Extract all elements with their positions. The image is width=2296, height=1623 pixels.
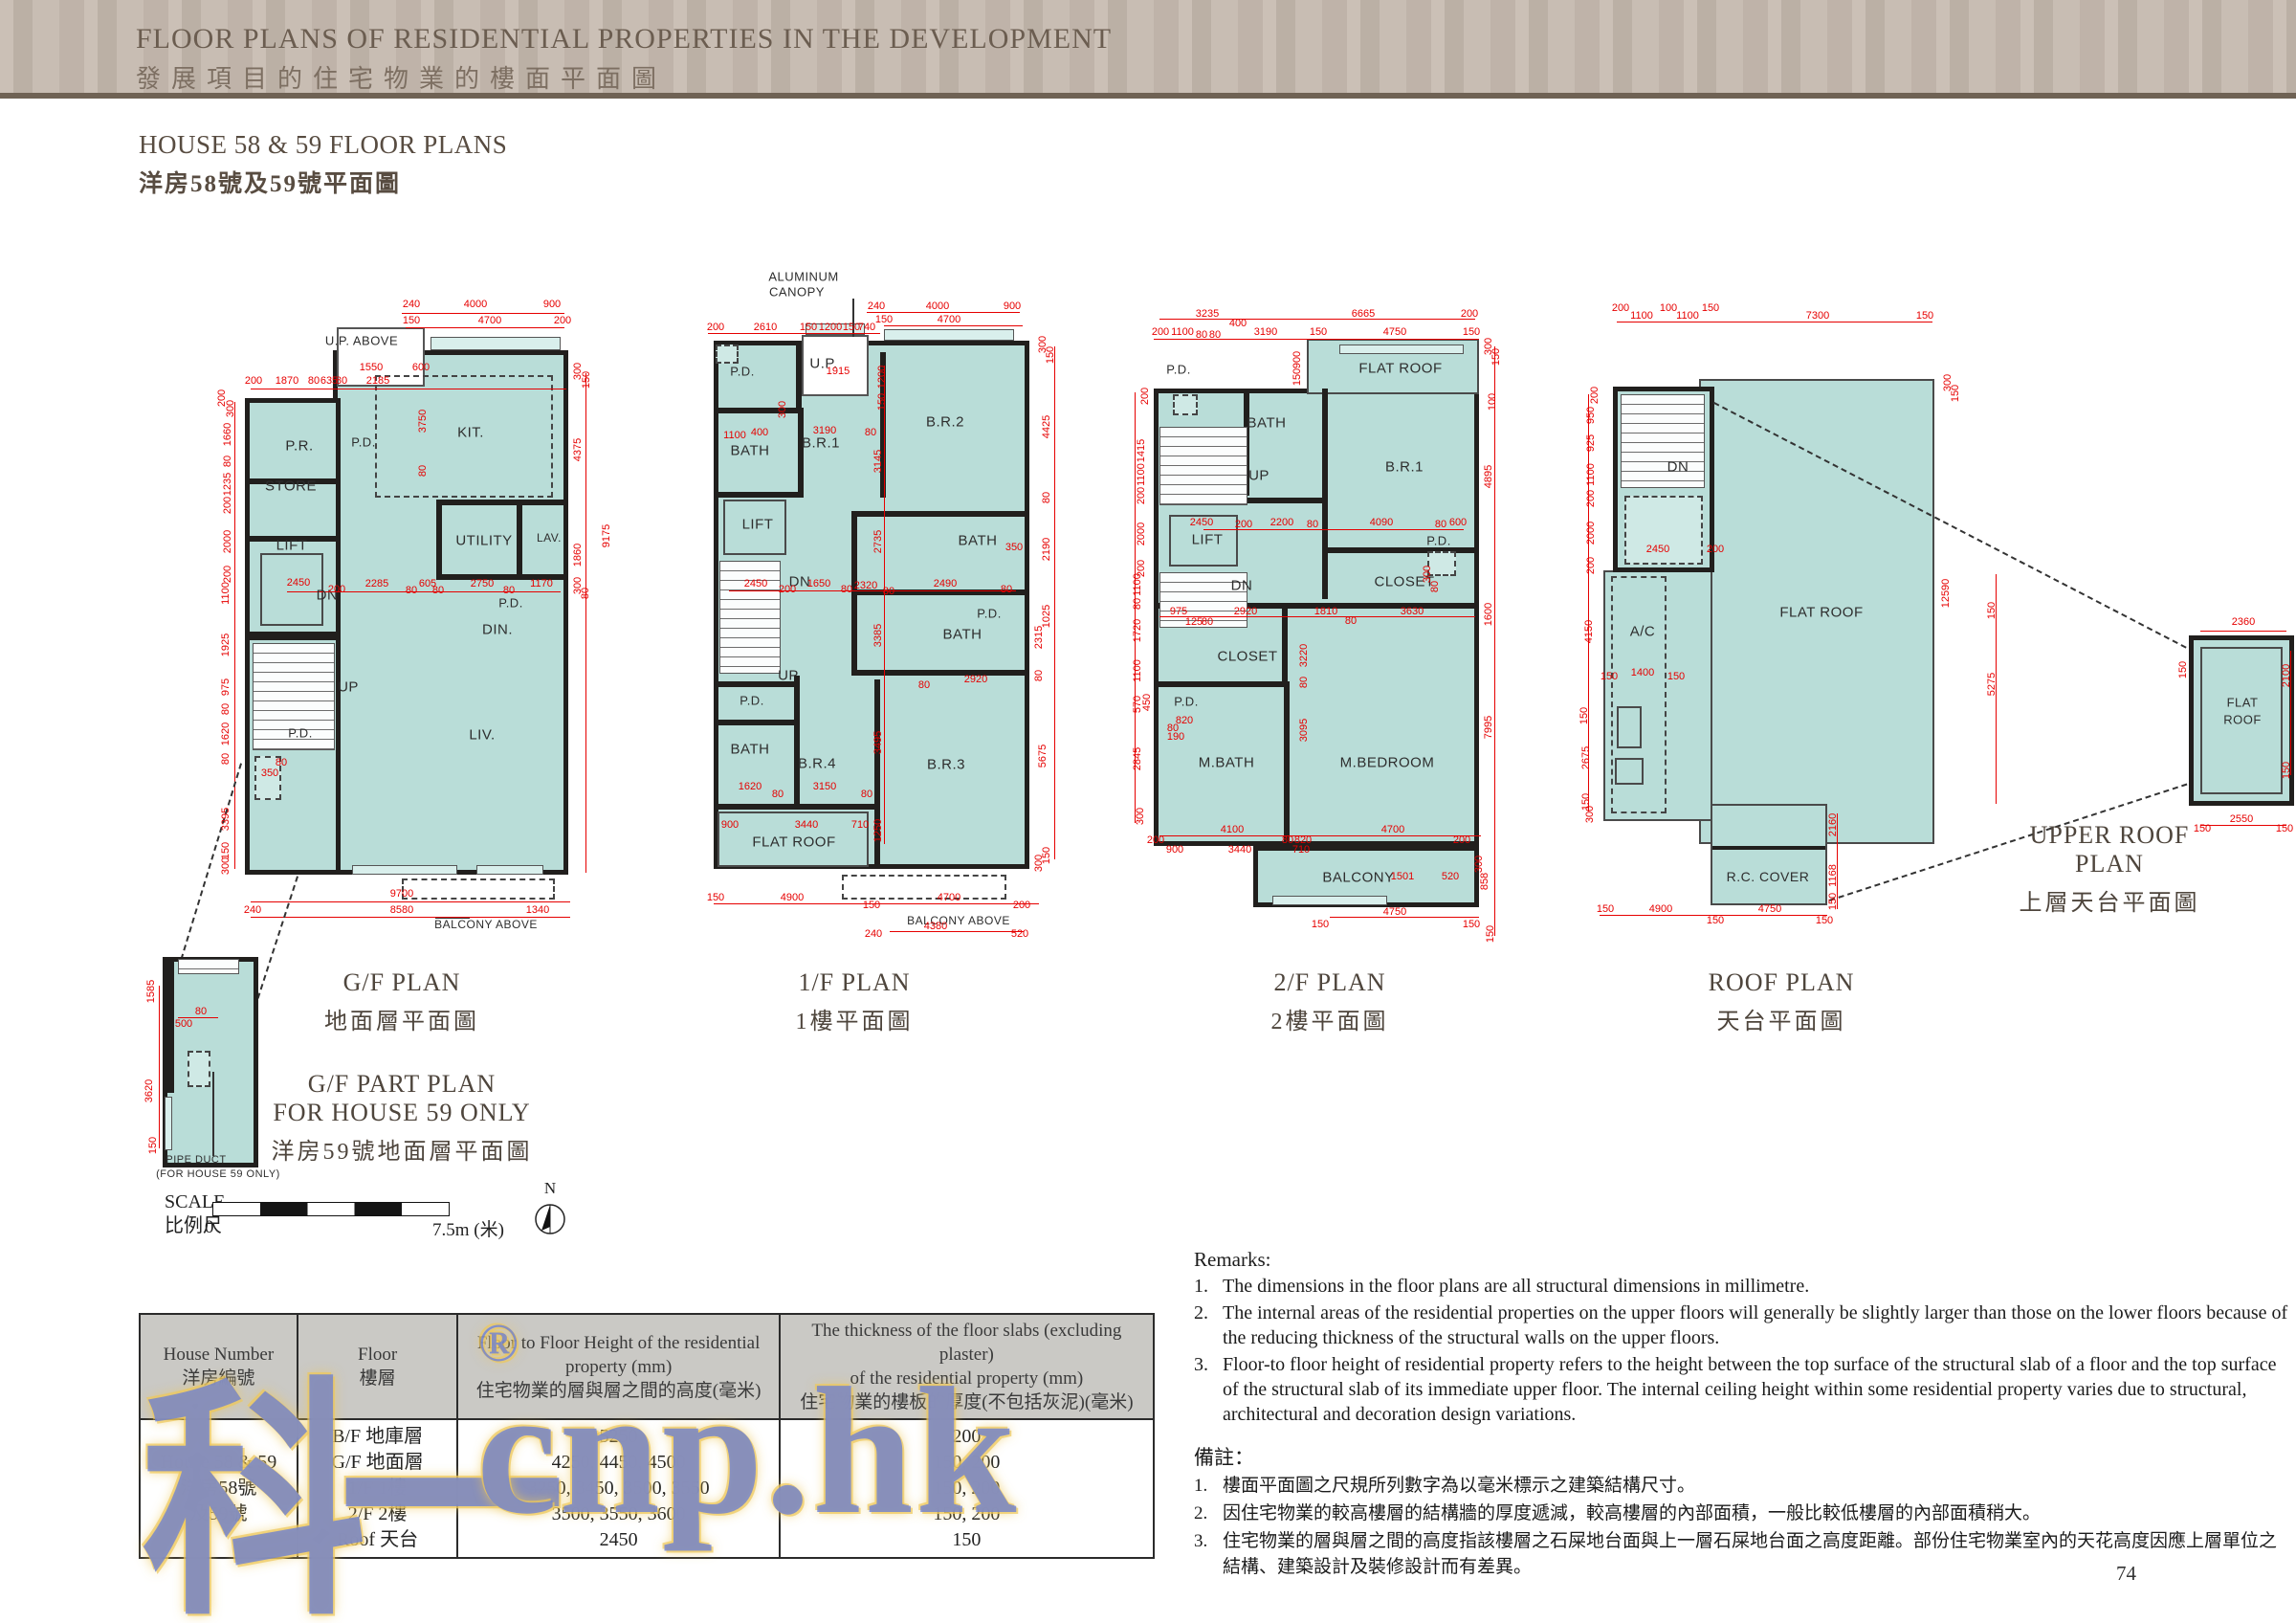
dimension-label: 150	[1597, 903, 1614, 915]
dimension-label: 150	[1667, 671, 1685, 682]
plan-caption-line: 洋房59號地面層平面圖	[272, 1132, 533, 1166]
dimension-label: 2100	[2281, 664, 2292, 687]
dimension-label: 975	[220, 678, 232, 696]
room-label: DIN.	[482, 622, 513, 638]
dimension-label: 5275	[1986, 673, 1998, 696]
dimension-label: 300	[1473, 856, 1485, 873]
remark-item: 3.Floor-to floor height of residential p…	[1194, 1352, 2292, 1427]
remarks-zh: 備註： 1.樓面平面圖之尺規所列數字為以毫米標示之建築結構尺寸。 2.因住宅物業…	[1194, 1442, 2292, 1580]
staircase-icon	[178, 959, 239, 974]
dimension-line	[1494, 346, 1495, 936]
dimension-label: 6665	[1352, 308, 1375, 320]
dimension-label: 150	[1950, 385, 1961, 402]
room-label: LIFT	[1192, 532, 1224, 548]
dimension-label: 150	[1601, 671, 1618, 682]
plan-caption-line: 2樓平面圖	[1271, 1002, 1389, 1035]
dimension-label: 200	[1585, 490, 1597, 507]
dimension-label: 80	[503, 585, 515, 596]
dimension-label: 240	[868, 300, 885, 312]
dimension-label: 200	[707, 322, 724, 333]
dimension-label: 100	[1660, 302, 1677, 314]
callout-line	[212, 1072, 214, 1156]
dimension-label: 150	[863, 900, 880, 911]
compass-icon	[529, 1198, 571, 1240]
staircase-icon	[1159, 427, 1247, 505]
room-label: FLAT ROOF	[752, 834, 835, 851]
dimension-label: 400	[1229, 318, 1247, 329]
dimension-label: 200	[222, 497, 233, 514]
dimension-label: 1870	[276, 375, 298, 387]
dimension-label: 1415	[1136, 439, 1147, 462]
dimension-label: 900	[1166, 844, 1183, 856]
dimension-label: 925	[1585, 434, 1597, 452]
dimension-label: 1600	[1483, 603, 1494, 626]
dimension-label: 4090	[1370, 517, 1393, 528]
dimension-label: 350	[261, 767, 278, 779]
plan-caption-f1: 1/F PLAN1樓平面圖	[796, 968, 914, 1035]
dimension-label: 2450	[1646, 544, 1669, 555]
dimension-label: 2200	[1270, 517, 1293, 528]
dimension-label: 1200	[876, 366, 888, 389]
wall-partition	[714, 720, 800, 725]
window-strip	[1339, 345, 1464, 354]
dimension-label: 200	[1461, 308, 1478, 320]
wall-partition	[517, 505, 522, 580]
dimension-label: 100	[1487, 393, 1498, 411]
dimension-label: 3750	[417, 410, 429, 433]
dimension-label: 2320	[854, 580, 877, 591]
plan-caption-f2: 2/F PLAN2樓平面圖	[1271, 968, 1389, 1035]
dimension-label: 200	[779, 584, 796, 595]
dimension-label: 2845	[1132, 747, 1143, 770]
dimension-label: 1585	[145, 980, 157, 1003]
dimension-label: 4900	[1649, 903, 1672, 915]
dimension-line	[406, 327, 564, 328]
dimension-line	[2200, 825, 2286, 826]
structure-outline	[1711, 804, 1827, 905]
dimension-label: 200	[1707, 544, 1724, 555]
room-label: P.D.	[740, 694, 764, 708]
scale-bar	[212, 1202, 450, 1216]
room-label: DN	[1667, 459, 1689, 476]
room-label: STORE	[265, 478, 317, 495]
window-strip	[430, 337, 561, 350]
window-strip	[352, 865, 457, 875]
dimension-label: 150	[1578, 707, 1590, 724]
room-label: B.R.4	[798, 756, 836, 772]
room-label: P.D.	[1174, 695, 1199, 709]
dimension-line	[890, 931, 1024, 932]
dimension-label: 1810	[1314, 606, 1337, 617]
dimension-label: 150	[581, 371, 592, 389]
dimension-label: 4375	[572, 438, 584, 461]
dimension-label: 80	[1033, 670, 1045, 681]
dimension-label: 950	[1585, 407, 1597, 424]
dimension-label: 80	[1001, 584, 1012, 595]
wall-partition	[857, 511, 1029, 517]
dimension-label: 80	[918, 679, 930, 691]
dimension-label: 150	[2281, 762, 2292, 779]
dimension-label: 200	[1013, 900, 1030, 911]
remark-item: 1.The dimensions in the floor plans are …	[1194, 1274, 2292, 1299]
watermark-domain: cnp.hk	[476, 1347, 1019, 1556]
room-label: B.R.1	[1385, 459, 1424, 476]
dimension-label: 80	[1202, 616, 1213, 628]
dimension-label: 1170	[530, 578, 553, 589]
dimension-label: 300	[1033, 855, 1045, 872]
dimension-label: 80	[1429, 581, 1441, 592]
plan-caption-line: 天台平面圖	[1709, 1002, 1855, 1035]
room-label: UTILITY	[455, 533, 512, 549]
room-label: LIV.	[469, 727, 495, 744]
dimension-label: 150	[147, 1137, 159, 1154]
dimension-label: 7300	[1806, 310, 1829, 322]
dimension-label: 300	[1584, 806, 1596, 823]
dimension-label: 80	[336, 375, 347, 387]
dimension-label: 4700	[1381, 824, 1404, 835]
dimension-line	[251, 389, 566, 389]
dimension-label: 1620	[739, 781, 762, 792]
room-label: P.D.	[351, 435, 376, 450]
dimension-label: 80	[220, 753, 232, 765]
dimension-label: 80	[1435, 519, 1446, 530]
room-label: B.R.1	[802, 435, 840, 452]
room-label: BATH	[943, 627, 982, 643]
dimension-label: 2285	[365, 578, 388, 589]
dimension-label: 150	[2177, 661, 2189, 678]
wall-partition	[794, 676, 800, 810]
dimension-label: 200	[1235, 519, 1252, 530]
room-label: BALCONY	[1322, 870, 1394, 886]
dimension-label: 1100	[220, 582, 232, 605]
plan-caption-line: 上層天台平面圖	[2017, 883, 2203, 917]
dimension-label: 3630	[1401, 606, 1424, 617]
dimension-label: 80	[1298, 677, 1310, 688]
room-label: A/C	[1630, 624, 1656, 640]
dimension-label: 150	[707, 892, 724, 903]
plan-caption-line: ROOF PLAN	[1709, 968, 1855, 997]
room-label: B.R.3	[927, 757, 965, 773]
dimension-label: 80	[1307, 519, 1318, 530]
room-label: BATH	[731, 443, 770, 459]
dimension-label: 300	[220, 857, 232, 875]
brochure-page: FLOOR PLANS OF RESIDENTIAL PROPERTIES IN…	[0, 0, 2296, 1623]
dimension-label: 150	[1485, 925, 1496, 943]
room-label: P.D.	[1166, 363, 1191, 377]
dimension-label: 3440	[795, 819, 818, 831]
north-arrow-icon: N	[528, 1179, 572, 1240]
dimension-label: 150	[1312, 919, 1329, 930]
dimension-label: 4000	[926, 300, 949, 312]
plan-caption-line: 1/F PLAN	[796, 968, 914, 997]
dimension-label: 740	[858, 322, 875, 333]
dimension-label: 900	[721, 819, 739, 831]
dimension-label: 3235	[1196, 308, 1219, 320]
dimension-label: 1100	[723, 430, 746, 441]
window-strip	[165, 1097, 172, 1150]
dimension-label: 3150	[813, 781, 836, 792]
structure-outline	[1615, 758, 1644, 785]
dimension-label: 80	[1345, 615, 1357, 627]
dimension-label: 80	[861, 789, 872, 800]
plan-caption-line: 1樓平面圖	[796, 1002, 914, 1035]
dimension-label: 1550	[360, 362, 383, 373]
wall-partition	[1246, 498, 1328, 503]
north-label: N	[528, 1179, 572, 1198]
room-label: FLAT ROOF	[1358, 361, 1442, 377]
dimension-label: 80	[308, 375, 320, 387]
room-label: P.D.	[498, 596, 523, 611]
dimension-label: 150	[876, 393, 888, 411]
dimension-label: 190	[1167, 731, 1184, 743]
plan-caption-gf-part: G/F PART PLANFOR HOUSE 59 ONLY洋房59號地面層平面…	[272, 1070, 533, 1166]
wall-partition	[798, 408, 804, 498]
wall-partition	[1328, 547, 1479, 553]
dimension-label: 150	[875, 314, 893, 325]
dimension-label: 2920	[964, 674, 987, 685]
window-strip	[1272, 896, 1387, 905]
dimension-line	[884, 325, 1023, 326]
remarks-block: Remarks: 1.The dimensions in the floor p…	[1194, 1248, 2292, 1580]
dimension-label: 9175	[601, 524, 612, 547]
dimension-label: 200	[1453, 834, 1470, 846]
room-label: FLAT ROOF	[1779, 605, 1863, 621]
wall-partition	[796, 341, 802, 413]
dimension-label: 3190	[813, 425, 836, 436]
dimension-label: 80	[220, 703, 232, 715]
dimension-label: 12590	[1940, 579, 1952, 609]
room-label: UP	[778, 668, 799, 684]
dimension-label: 1720	[1132, 619, 1143, 642]
room-label: DN	[1231, 578, 1253, 594]
dimension-label: 1100	[1132, 659, 1143, 682]
dimension-label: 600	[412, 362, 430, 373]
room-label: (FOR HOUSE 59 ONLY)	[156, 1168, 280, 1180]
dimension-label: 2000	[1585, 522, 1597, 545]
dimension-line	[708, 333, 880, 334]
plan-caption-line: G/F PLAN	[324, 968, 479, 997]
remarks-title-zh: 備註：	[1194, 1442, 2292, 1471]
room-label: BALCONY ABOVE	[434, 918, 538, 931]
wall-partition	[857, 670, 1029, 676]
dimension-line	[1054, 346, 1055, 859]
dimension-line	[1159, 835, 1481, 836]
dimension-label: 520	[1442, 871, 1459, 882]
dimension-label: 150	[1816, 915, 1833, 926]
plan-caption-line: 2/F PLAN	[1271, 968, 1389, 997]
room-label: LIFT	[276, 538, 308, 554]
wall-partition	[436, 500, 442, 580]
dimension-label: 200	[222, 566, 233, 583]
dimension-label: 2450	[1190, 517, 1213, 528]
dimension-label: 1250	[872, 819, 884, 842]
page-number: 74	[2116, 1562, 2136, 1586]
dimension-label: 150	[1463, 326, 1480, 338]
room-label: M.BEDROOM	[1340, 755, 1435, 771]
wall-partition	[436, 500, 568, 505]
dimension-label: 1235	[222, 473, 233, 496]
dimension-line	[1722, 915, 1827, 916]
dimension-label: 1660	[222, 423, 233, 446]
duct-box	[716, 345, 739, 364]
dimension-label: 200	[1612, 302, 1629, 314]
dimension-label: 520	[1011, 928, 1028, 940]
dimension-label: 2450	[744, 578, 767, 589]
dimension-label: 3395	[220, 808, 232, 831]
dimension-label: 1860	[572, 544, 584, 567]
dimension-label: 2610	[754, 322, 777, 333]
structure-outline	[1617, 706, 1642, 748]
dimension-label: 80	[406, 585, 417, 596]
dimension-label: 1168	[1827, 864, 1839, 887]
room-label: LIFT	[742, 517, 774, 533]
dimension-label: 4750	[1383, 326, 1406, 338]
room-label: B.R.2	[926, 414, 964, 431]
dimension-label: 80	[772, 789, 784, 800]
room-label: BATH	[731, 742, 770, 758]
dimension-label: 4750	[1383, 906, 1406, 918]
dimension-line	[884, 366, 885, 844]
dimension-label: 80	[1041, 492, 1052, 503]
dimension-label: 2190	[1041, 538, 1052, 561]
room-label: P.D.	[1426, 534, 1451, 548]
scale-start-value: 0	[205, 1217, 214, 1238]
remarks-list-en: 1.The dimensions in the floor plans are …	[1194, 1274, 2292, 1427]
dimension-label: 1100	[1132, 573, 1143, 596]
dimension-label: 4700	[938, 314, 960, 325]
dimension-label: 1100	[1136, 463, 1147, 486]
room-label: P.R.	[285, 438, 313, 455]
dimension-label: 200	[1589, 387, 1601, 404]
room-label: CLOSET	[1217, 649, 1277, 665]
dimension-label: 858	[1479, 873, 1490, 890]
remark-item: 2.The internal areas of the residential …	[1194, 1301, 2292, 1350]
remarks-title-en: Remarks:	[1194, 1248, 2292, 1272]
dimension-label: 4700	[938, 892, 960, 903]
room-label: UP	[338, 679, 359, 696]
dimension-label: 710	[851, 819, 869, 831]
duct-box	[1173, 394, 1198, 415]
dimension-label: 2675	[1580, 746, 1592, 769]
plan-caption-line: FOR HOUSE 59 ONLY	[272, 1099, 533, 1127]
dashed-outline	[842, 875, 1006, 900]
room-label: P.D.	[977, 607, 1002, 621]
structure-outline	[260, 553, 323, 626]
window-strip	[884, 329, 1014, 341]
dimension-label: 300	[1135, 808, 1146, 825]
wall-partition	[1154, 681, 1288, 687]
dimension-label: 150	[1827, 893, 1839, 910]
dimension-label: 1650	[807, 578, 830, 589]
dimension-label: 150	[1310, 326, 1327, 338]
dimension-label: 200	[1147, 834, 1164, 846]
dimension-label: 350	[1005, 542, 1023, 553]
plan-caption-line: UPPER ROOF PLAN	[2017, 821, 2203, 878]
dimension-label: 9700	[390, 888, 413, 900]
dimension-label: 80	[195, 1006, 207, 1017]
room-label: BATH	[1247, 415, 1287, 432]
dimension-label: 500	[175, 1018, 192, 1030]
wall-partition	[1284, 681, 1290, 846]
plan-caption-upper-roof: UPPER ROOF PLAN上層天台平面圖	[2017, 821, 2203, 917]
scale-label-zh: 比例尺	[165, 1214, 225, 1238]
room-label: P.D.	[730, 365, 755, 379]
room-block	[163, 957, 258, 1167]
dimension-label: 80	[883, 586, 894, 597]
dimension-label: 4000	[464, 299, 487, 310]
dimension-label: 240	[244, 904, 261, 916]
dimension-label: 1100	[1171, 326, 1194, 338]
dimension-label: 80	[841, 584, 852, 595]
dimension-line	[867, 312, 1020, 313]
dimension-label: 900	[1004, 300, 1021, 312]
dimension-label: 450	[1141, 694, 1153, 711]
dimension-line	[159, 986, 160, 1148]
dimension-label: 200	[1136, 487, 1147, 504]
dimension-label: 2000	[1136, 522, 1147, 545]
remark-item: 1.樓面平面圖之尺規所列數字為以毫米標示之建築結構尺寸。	[1194, 1473, 2292, 1499]
room-label: M.BATH	[1199, 755, 1255, 771]
dimension-label: 1925	[220, 634, 232, 656]
dimension-label: 80	[222, 456, 233, 467]
dimension-label: 4900	[781, 892, 804, 903]
dimension-label: 2160	[1827, 813, 1839, 836]
dimension-label: 300	[225, 400, 236, 417]
room-label: KIT.	[457, 425, 484, 441]
dimension-label: 1620	[220, 723, 232, 745]
dimension-label: 3495	[872, 731, 884, 754]
dimension-label: 3440	[1228, 844, 1251, 856]
dimension-label: 80	[417, 465, 429, 477]
dimension-label: 80	[1132, 598, 1143, 610]
plan-caption-line: 地面層平面圖	[324, 1002, 479, 1035]
dimension-label: 1100	[1585, 463, 1597, 486]
wall-partition	[1712, 846, 1825, 850]
dimension-label: 150	[1045, 346, 1056, 364]
dimension-label: 4100	[1221, 824, 1244, 835]
dimension-label: 2185	[366, 375, 389, 387]
remark-item: 2.因住宅物業的較高樓層的結構牆的厚度遞減，較高樓層的內部面積，一般比較低樓層的…	[1194, 1501, 2292, 1526]
room-label: R.C. COVER	[1727, 869, 1810, 884]
dimension-label: 2450	[287, 577, 310, 589]
plan-caption-line: G/F PART PLAN	[272, 1070, 533, 1099]
dimension-label: 1100	[1676, 310, 1699, 322]
dimension-label: 3385	[872, 624, 884, 647]
dimension-label: 200	[1152, 326, 1169, 338]
dimension-label: 200	[328, 584, 345, 595]
wall-partition	[1282, 609, 1288, 683]
wall-partition	[714, 492, 802, 498]
dimension-label: 900	[543, 299, 561, 310]
dimension-label: 2920	[1234, 606, 1257, 617]
dimension-label: 240	[865, 928, 882, 940]
dimension-label: 2735	[872, 530, 884, 553]
dimension-label: 1025	[1041, 605, 1052, 628]
dimension-label: 1915	[827, 366, 850, 377]
dimension-label: 1501	[1391, 871, 1414, 882]
dimension-label: 80	[276, 757, 287, 768]
dimension-label: 1100	[1630, 310, 1653, 322]
room-label: UP	[1248, 468, 1269, 484]
room-label: P.D.	[288, 726, 313, 741]
dimension-label: 80	[865, 427, 876, 438]
wall-partition	[714, 804, 876, 810]
scale-end-value: 7.5m (米)	[432, 1215, 504, 1241]
dimension-label: 150	[403, 315, 420, 326]
dimension-label: 80	[432, 585, 444, 596]
dimension-label: 150	[1916, 310, 1933, 322]
dimension-label: 2360	[2232, 616, 2255, 628]
